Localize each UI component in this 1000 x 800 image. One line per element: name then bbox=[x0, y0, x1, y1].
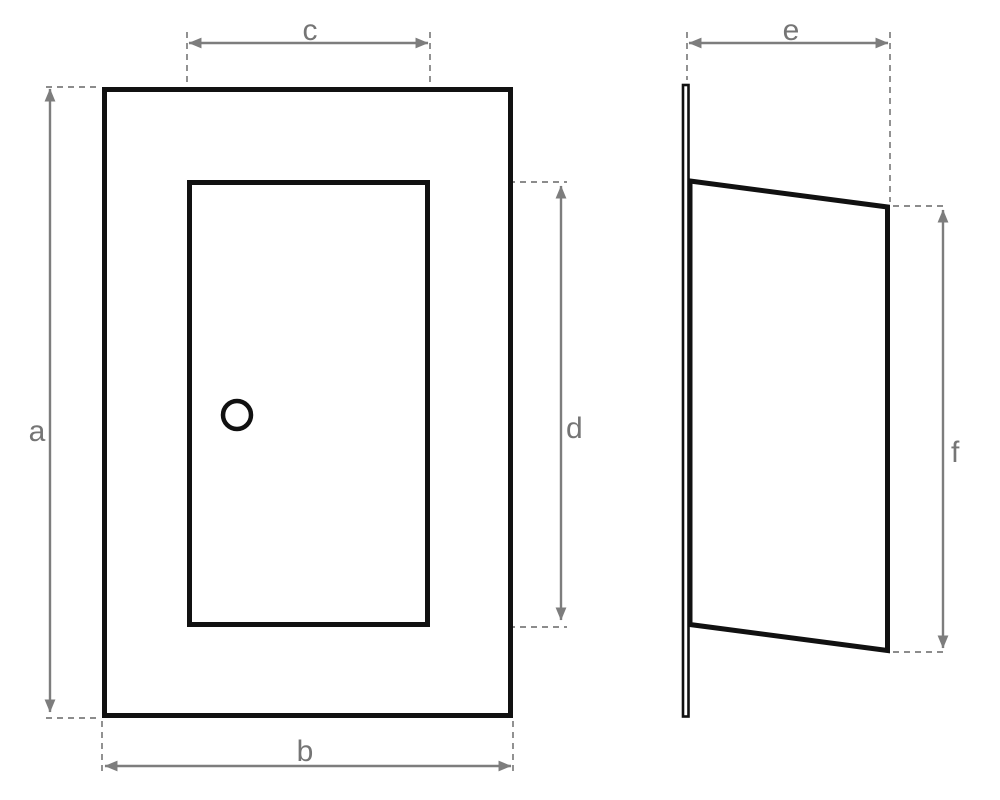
drawing-canvas: c a b d e f bbox=[0, 0, 1000, 800]
technical-drawing-svg: c a b d e f bbox=[0, 0, 1000, 800]
angled-panel-polygon bbox=[690, 181, 888, 651]
dim-label-e: e bbox=[783, 14, 800, 47]
dim-label-f: f bbox=[951, 436, 960, 469]
dim-label-c: c bbox=[303, 14, 318, 47]
dim-label-a: a bbox=[29, 415, 46, 448]
dim-label-d: d bbox=[566, 412, 583, 445]
dim-label-b: b bbox=[297, 735, 314, 768]
front-view bbox=[105, 90, 511, 716]
knob-hole-circle bbox=[223, 401, 251, 429]
inner-door-rect bbox=[190, 183, 428, 625]
side-view bbox=[683, 85, 888, 717]
